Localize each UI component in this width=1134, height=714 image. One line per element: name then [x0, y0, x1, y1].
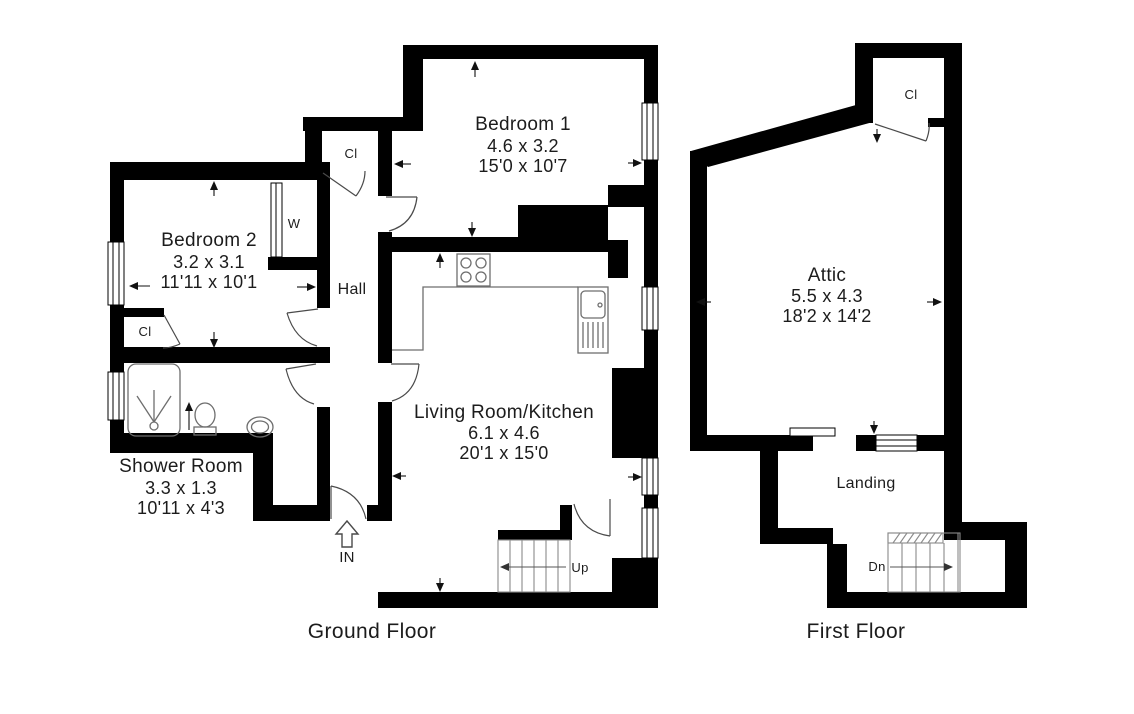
living-kitchen-metric: 6.1 x 4.6: [468, 423, 540, 443]
entrance-arrow-icon: [336, 521, 358, 547]
window-bedroom1-right: [642, 103, 658, 160]
floorplan-page: Bedroom 2 3.2 x 3.1 11'11 x 10'1 Bedroom…: [0, 0, 1134, 714]
wall-kitchen-tail: [608, 240, 628, 278]
door-entrance: [331, 486, 366, 519]
shower-room-imperial: 10'11 x 4'3: [137, 498, 225, 518]
wall-hall-right-lower: [378, 402, 392, 507]
first-floor-labels: Attic 5.5 x 4.3 18'2 x 14'2 Landing Cl D…: [782, 87, 917, 643]
hall-name: Hall: [338, 281, 367, 298]
door-bedroom1: [386, 197, 417, 231]
wall-landing-bottom-left: [760, 528, 833, 544]
wall-ground-bottom: [378, 592, 658, 608]
wall-right-chunk: [612, 368, 658, 458]
wall-wardrobe-bottom: [268, 257, 317, 270]
wall-right-4: [644, 495, 658, 508]
stairs-down: [888, 533, 960, 592]
wall-stairs-stub: [560, 505, 572, 540]
wall-hall-right-mid: [378, 232, 392, 363]
wall-bedroom1-bottom-chunk: [518, 205, 608, 252]
stairs-up-arrow: [500, 563, 509, 571]
wall-stairs-top: [498, 530, 560, 540]
door-attic-closet: [875, 123, 929, 141]
attic-name: Attic: [808, 265, 846, 286]
wall-hall-left-upper: [317, 180, 330, 308]
stove-icon: [457, 254, 490, 286]
shower-room-metric: 3.3 x 1.3: [145, 478, 217, 498]
ground-floor-title: Ground Floor: [308, 620, 437, 643]
wardrobe-front: [271, 183, 282, 257]
ground-floor-plan: Bedroom 2 3.2 x 3.1 11'11 x 10'1 Bedroom…: [108, 45, 658, 643]
wall-landing-left: [760, 448, 778, 540]
wardrobe-label: W: [288, 216, 301, 231]
door-bedroom2: [287, 309, 318, 346]
stairs-up-label: Up: [571, 560, 588, 575]
wall-attic-bottom-left: [690, 435, 813, 451]
bedroom2-name: Bedroom 2: [161, 230, 257, 251]
wall-step: [608, 185, 658, 207]
ground-floor-walls: [110, 45, 658, 608]
door-living-room: [391, 364, 419, 401]
stairs-down-arrow: [944, 563, 953, 571]
wall-bedroom1-top: [403, 45, 658, 59]
bedroom2-imperial: 11'11 x 10'1: [161, 272, 258, 292]
bedroom2-metric: 3.2 x 3.1: [173, 252, 245, 272]
ground-floor-labels: Bedroom 2 3.2 x 3.1 11'11 x 10'1 Bedroom…: [119, 114, 594, 643]
wall-bedroom1-bottom: [378, 237, 518, 252]
living-kitchen-name: Living Room/Kitchen: [414, 402, 594, 423]
wall-entrance-bottom-left: [253, 505, 330, 521]
entrance-label: IN: [339, 549, 355, 566]
wall-right-3: [644, 330, 658, 368]
attic-imperial: 18'2 x 14'2: [782, 306, 871, 326]
wall-bedroom2-closet-top: [124, 308, 164, 317]
hall-closet-label: Cl: [345, 146, 358, 161]
wall-attic-bottom-mid: [856, 435, 876, 451]
wall-bedroom2-bottom: [110, 347, 330, 363]
bedroom1-metric: 4.6 x 3.2: [487, 136, 559, 156]
bedroom2-closet-label: Cl: [139, 324, 152, 339]
wall-right-bottom-chunk: [612, 558, 658, 592]
bedroom1-name: Bedroom 1: [475, 114, 571, 135]
wall-bedroom2-top: [110, 162, 330, 180]
toilet-icon: [194, 403, 216, 435]
stairs-up: [498, 540, 570, 592]
kitchen-sink-icon: [578, 287, 608, 353]
window-living-right-1: [642, 287, 658, 330]
landing-name: Landing: [836, 475, 895, 492]
door-shower-room: [286, 364, 316, 404]
wall-right-1: [644, 45, 658, 103]
floorplan-canvas: Bedroom 2 3.2 x 3.1 11'11 x 10'1 Bedroom…: [0, 0, 1134, 714]
wall-attic-bottom-right: [917, 435, 945, 451]
wall-first-bottom: [827, 592, 1027, 608]
bedroom1-imperial: 15'0 x 10'7: [478, 156, 567, 176]
attic-low-unit: [790, 428, 835, 436]
bathroom-fixtures: [128, 364, 273, 437]
stairs-down-label: Dn: [868, 559, 885, 574]
shower-icon: [128, 364, 180, 436]
window-bedroom2-left: [108, 242, 124, 305]
wall-right-2: [644, 160, 658, 287]
window-landing: [876, 435, 917, 451]
wall-hall-left-lower: [317, 407, 330, 507]
living-kitchen-imperial: 20'1 x 15'0: [459, 443, 548, 463]
window-shower-left: [108, 372, 124, 420]
kitchen-fixtures: [392, 254, 608, 353]
door-living-bottom: [574, 499, 610, 536]
first-floor-title: First Floor: [807, 620, 906, 643]
first-floor-plan: Attic 5.5 x 4.3 18'2 x 14'2 Landing Cl D…: [690, 43, 1027, 643]
shower-room-name: Shower Room: [119, 456, 243, 477]
attic-closet-label: Cl: [905, 87, 918, 102]
wall-bedroom2-left-upper: [110, 162, 124, 242]
window-living-right-2: [642, 458, 658, 495]
kitchen-counter: [392, 287, 578, 350]
door-bedroom2-closet: [163, 315, 180, 348]
wall-attic-closet-stub: [928, 118, 944, 127]
wall-first-right: [944, 43, 962, 525]
window-living-right-3: [642, 508, 658, 558]
wall-entrance-right-stub: [367, 505, 392, 521]
wall-hall-right-upper: [378, 117, 392, 196]
wall-attic-sloped: [691, 105, 873, 167]
attic-metric: 5.5 x 4.3: [791, 286, 863, 306]
wall-extension-top: [944, 522, 1027, 540]
